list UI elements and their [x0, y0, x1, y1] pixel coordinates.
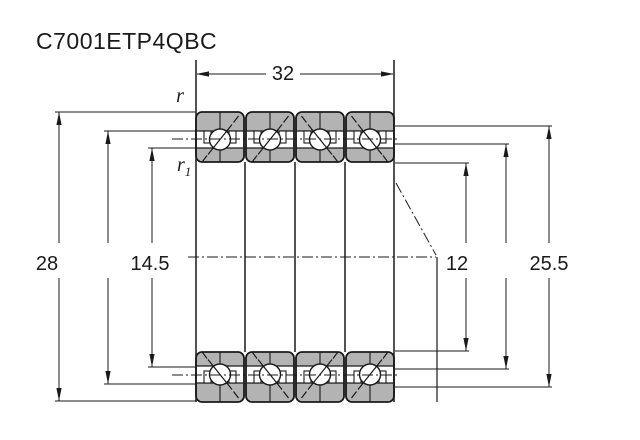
chamfer-inner-label: r1 — [177, 154, 191, 179]
bearing-drawing: C7001ETP4QBC 32 28 14.5 12 25.5 r r1 — [0, 0, 640, 440]
extension-lines — [55, 60, 552, 401]
dim-outer-left-label: 28 — [36, 253, 58, 275]
chamfer-outer-label: r — [176, 85, 184, 107]
technical-drawing-page: C7001ETP4QBC 32 28 14.5 12 25.5 r r1 — [0, 0, 640, 440]
axis-jog-diagonal — [396, 183, 436, 255]
drawing-title: C7001ETP4QBC — [36, 28, 217, 54]
bearing-row-bottom — [196, 352, 394, 402]
bearing-row-top — [196, 112, 394, 162]
dim-inner-left-label: 14.5 — [131, 253, 170, 275]
dim-bore-label: 12 — [446, 253, 468, 275]
centerlines — [172, 139, 436, 375]
dim-outer-right-label: 25.5 — [530, 253, 569, 275]
dim-width-label: 32 — [272, 63, 294, 85]
